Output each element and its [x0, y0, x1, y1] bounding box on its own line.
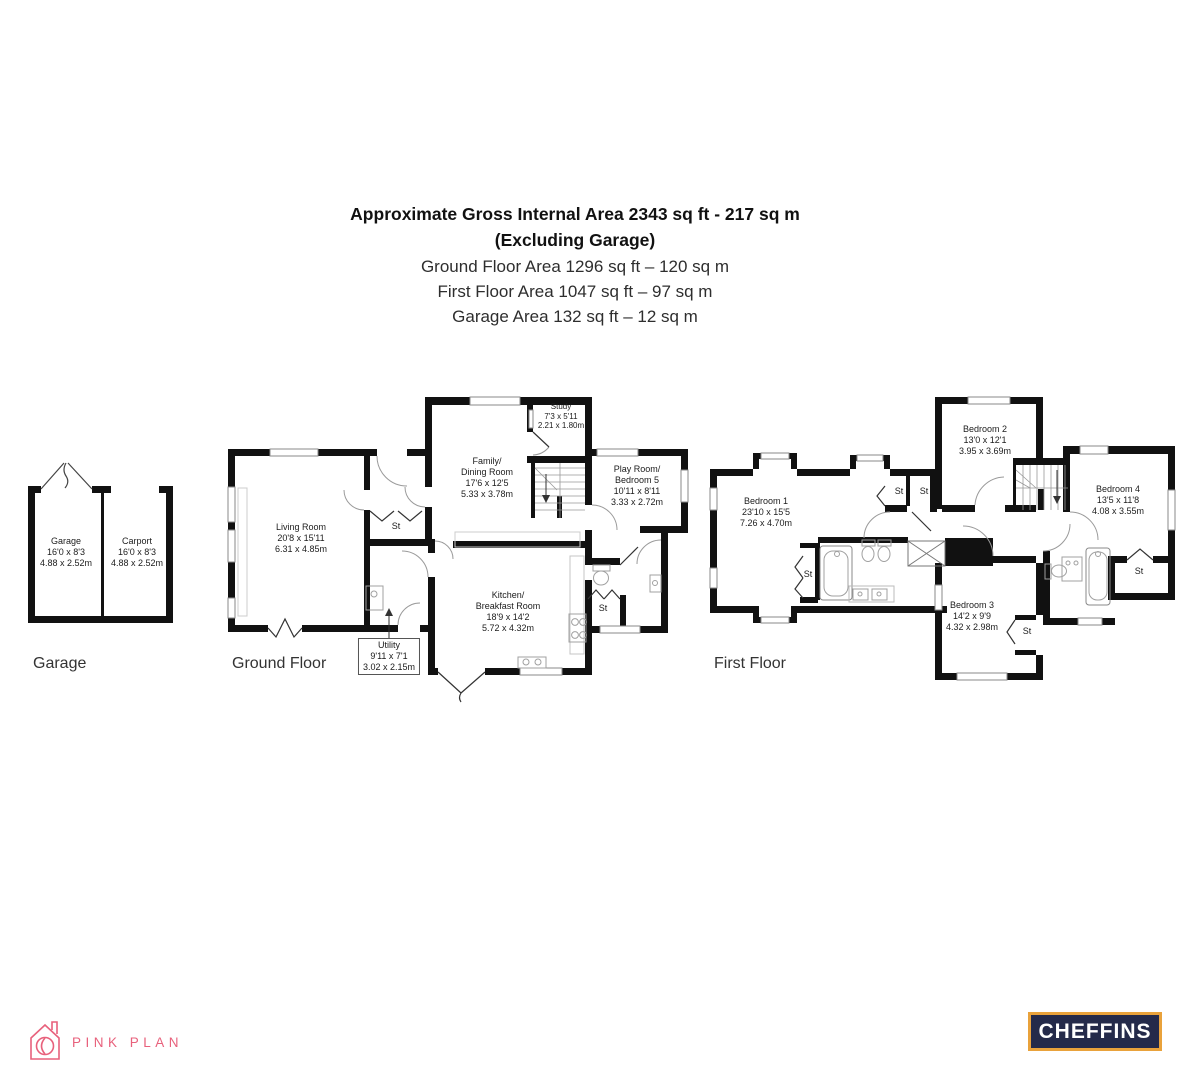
first-floor-windows	[710, 397, 1175, 680]
pink-plan-house-icon	[31, 1022, 59, 1059]
room-label-bedroom3: Bedroom 3 14'2 x 9'9 4.32 x 2.98m	[946, 600, 998, 633]
storage-label-e: St	[1135, 566, 1144, 576]
storage-label-b: St	[920, 486, 929, 496]
storage-label-hall: St	[392, 521, 401, 531]
room-label-utility: Utility 9'11 x 7'1 3.02 x 2.15m	[358, 638, 420, 675]
room-label-bedroom2: Bedroom 2 13'0 x 12'1 3.95 x 3.69m	[959, 424, 1011, 457]
first-floor-plan-title: First Floor	[714, 655, 786, 673]
storage-label-a: St	[895, 486, 904, 496]
first-floor-walls	[710, 397, 1175, 680]
room-label-living-room: Living Room 20'8 x 15'11 6.31 x 4.85m	[275, 522, 327, 555]
room-label-play-room: Play Room/ Bedroom 5 10'11 x 8'11 3.33 x…	[611, 464, 663, 508]
room-label-bedroom1: Bedroom 1 23'10 x 15'5 7.26 x 4.70m	[740, 496, 792, 529]
ground-stairs-arrow	[542, 474, 550, 503]
floorplan-graphics	[0, 0, 1191, 1080]
storage-label-wc: St	[599, 603, 608, 613]
pink-plan-logo: PINK PLAN	[72, 1035, 183, 1050]
utility-arrow	[385, 608, 393, 638]
room-label-study: Study 7'3 x 5'11 2.21 x 1.80m	[538, 402, 584, 431]
garage-plan-title: Garage	[33, 655, 86, 673]
room-label-family-dining: Family/ Dining Room 17'6 x 12'5 5.33 x 3…	[461, 456, 513, 500]
ground-stairs	[535, 463, 585, 518]
storage-label-c: St	[804, 569, 813, 579]
room-label-kitchen: Kitchen/ Breakfast Room 18'9 x 14'2 5.72…	[476, 590, 541, 634]
room-label-bedroom4: Bedroom 4 13'5 x 11'8 4.08 x 3.55m	[1092, 484, 1144, 517]
ground-fixtures	[238, 488, 661, 668]
room-label-garage: Garage 16'0 x 8'3 4.88 x 2.52m	[40, 536, 92, 569]
ground-floor-plan-title: Ground Floor	[232, 655, 326, 673]
floorplan-page: Approximate Gross Internal Area 2343 sq …	[0, 0, 1191, 1080]
cheffins-logo: CHEFFINS	[1028, 1012, 1162, 1051]
first-stairs-arrow	[1053, 470, 1061, 504]
storage-label-d: St	[1023, 626, 1032, 636]
garage-door-icon	[41, 463, 92, 489]
room-label-carport: Carport 16'0 x 8'3 4.88 x 2.52m	[111, 536, 163, 569]
